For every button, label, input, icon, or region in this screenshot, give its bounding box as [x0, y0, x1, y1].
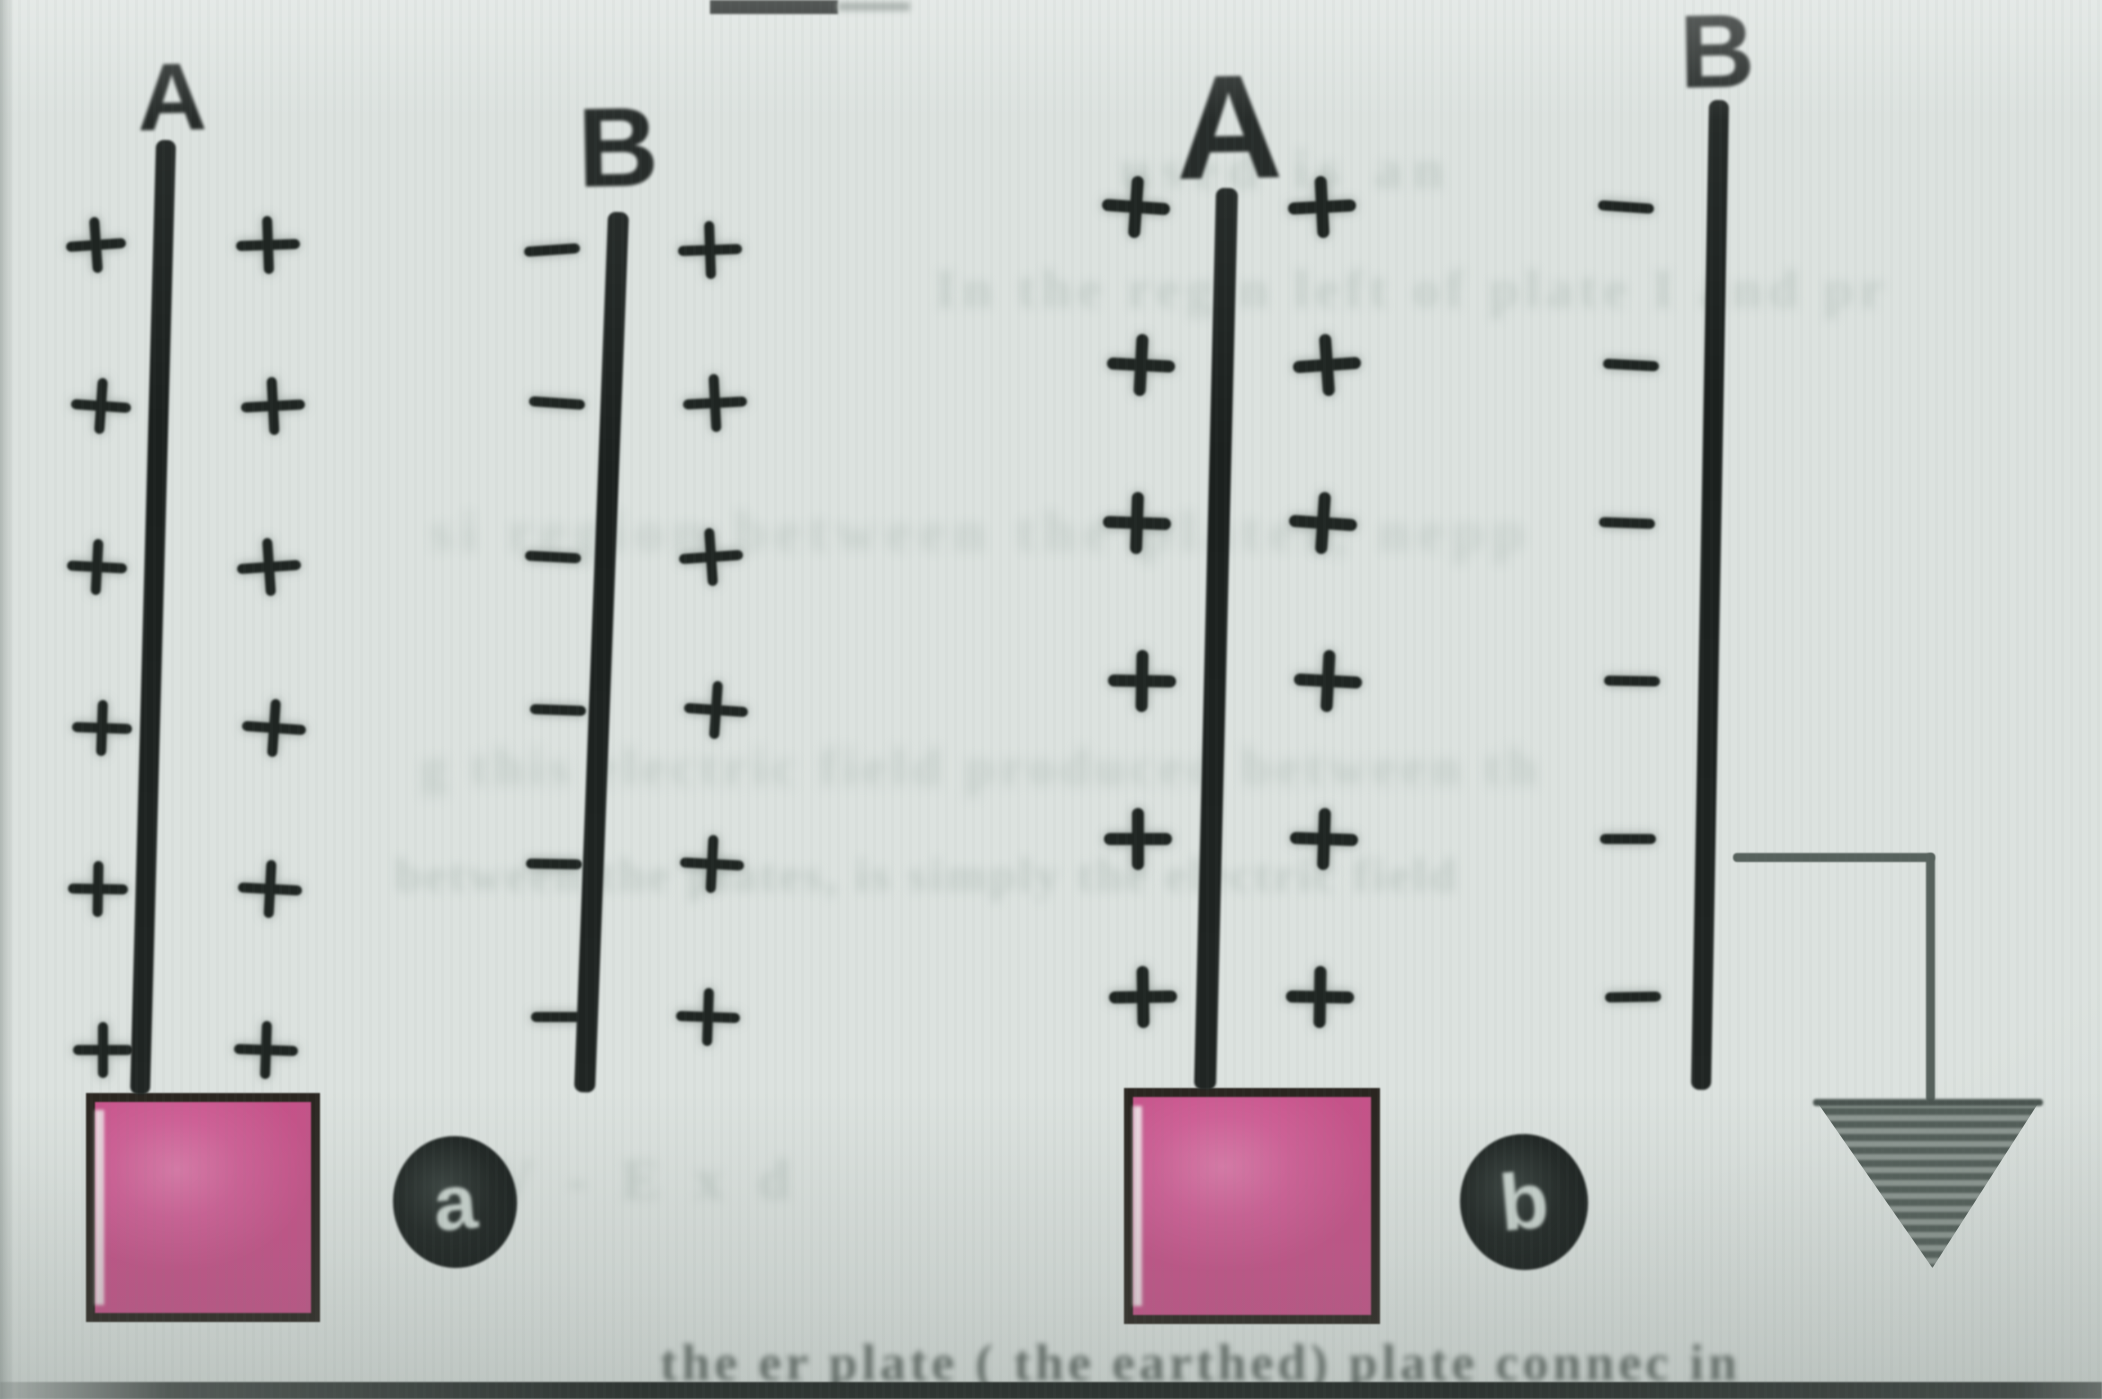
charge-bar-vertical — [1321, 649, 1336, 712]
plus-charge-icon — [65, 535, 128, 598]
plus-charge-icon — [67, 858, 128, 919]
plus-charge-icon — [240, 694, 308, 762]
book-scan-page: used is anIn the reg n left of plate I a… — [0, 0, 2102, 1399]
plus-charge-icon — [1285, 962, 1354, 1031]
charge-bar-vertical — [708, 373, 722, 432]
earth-wire-vertical — [1926, 853, 1935, 1102]
charge-bar-vertical — [1130, 492, 1144, 555]
plus-charge-icon — [73, 1020, 133, 1080]
charge-bar-vertical — [92, 861, 103, 916]
charge-bar-vertical — [90, 539, 103, 595]
subfigure-badge-label: a — [429, 1155, 480, 1249]
plate-label-b: B — [577, 91, 660, 204]
minus-charge-icon — [522, 220, 582, 280]
minus-charge-icon — [524, 528, 583, 587]
plus-charge-icon — [69, 374, 133, 438]
plus-charge-icon — [1286, 171, 1357, 242]
charge-bar-vertical — [704, 220, 717, 279]
charge-bar-vertical — [1319, 333, 1335, 396]
subfigure-badge-label: b — [1496, 1154, 1553, 1250]
bleedthrough-text: In the reg n left of plate I and pr — [935, 258, 1890, 320]
charge-bar-vertical — [94, 378, 108, 434]
ground-earth-icon — [1817, 1102, 2039, 1268]
bottom-cutoff-text-rule — [0, 1382, 2102, 1399]
charge-bar-horizontal — [526, 859, 582, 869]
charge-bar-horizontal — [524, 243, 581, 256]
plus-charge-icon — [1287, 487, 1360, 560]
charge-bar-vertical — [266, 376, 280, 435]
top-rule-smudge — [838, 2, 910, 11]
plus-charge-icon — [239, 372, 306, 439]
plus-charge-icon — [681, 369, 748, 436]
charge-bar-horizontal — [1599, 517, 1655, 528]
plus-charge-icon — [1102, 488, 1172, 558]
minus-charge-icon — [1598, 494, 1656, 552]
charge-bar-horizontal — [529, 396, 586, 409]
plate-a-line — [130, 140, 176, 1096]
ground-top-edge — [1813, 1099, 2043, 1106]
plus-charge-icon — [235, 212, 301, 278]
minus-charge-icon — [526, 836, 583, 893]
charge-bar-vertical — [89, 217, 103, 273]
subfigure-badge-b: b — [1454, 1129, 1593, 1276]
plate-a-line — [1194, 188, 1238, 1091]
charge-bar-vertical — [1315, 491, 1331, 554]
plus-charge-icon — [1105, 329, 1176, 400]
charge-bar-horizontal — [1604, 676, 1660, 686]
charge-bar-vertical — [1317, 808, 1331, 871]
bleedthrough-text: V - E x d — [492, 1146, 800, 1213]
charge-bar-vertical — [1128, 175, 1144, 238]
minus-charge-icon — [529, 681, 587, 739]
plus-charge-icon — [1107, 646, 1176, 715]
plus-charge-icon — [675, 984, 741, 1050]
charge-bar-vertical — [705, 834, 719, 893]
charge-bar-horizontal — [1603, 359, 1659, 371]
plus-charge-icon — [677, 523, 745, 591]
plus-charge-icon — [71, 697, 133, 759]
minus-charge-icon — [527, 373, 587, 433]
plus-charge-icon — [1291, 329, 1364, 402]
charge-bar-vertical — [1137, 966, 1150, 1029]
minus-charge-icon — [1605, 969, 1662, 1026]
insulating-stand-block — [1124, 1088, 1380, 1324]
charge-bar-vertical — [1132, 808, 1144, 871]
charge-bar-vertical — [96, 700, 108, 756]
charge-bar-horizontal — [525, 551, 581, 563]
plus-charge-icon — [233, 1017, 299, 1083]
plate-b-line — [1691, 100, 1729, 1090]
charge-bar-horizontal — [1598, 200, 1655, 213]
plate-label-a: A — [137, 49, 208, 146]
plus-charge-icon — [1292, 645, 1363, 716]
plus-charge-icon — [236, 855, 303, 922]
plus-charge-icon — [64, 213, 128, 277]
earth-wire-horizontal — [1733, 853, 1935, 862]
minus-charge-icon — [1600, 811, 1656, 867]
charge-bar-horizontal — [1605, 992, 1661, 1002]
insulating-stand-block — [86, 1093, 320, 1322]
plus-charge-icon — [677, 217, 743, 283]
plus-charge-icon — [1104, 805, 1172, 873]
charge-bar-vertical — [260, 1020, 273, 1079]
charge-bar-vertical — [98, 1022, 108, 1077]
plate-label-a: A — [1174, 53, 1283, 203]
charge-bar-vertical — [1314, 966, 1327, 1029]
minus-charge-icon — [1604, 653, 1661, 710]
charge-bar-horizontal — [530, 704, 586, 715]
charge-bar-vertical — [263, 859, 277, 918]
plus-charge-icon — [1289, 804, 1359, 874]
plate-b-line — [574, 212, 629, 1093]
plate-label-b: B — [1679, 0, 1756, 105]
plus-charge-icon — [1100, 171, 1173, 244]
charge-bar-vertical — [702, 987, 715, 1046]
plus-charge-icon — [1108, 962, 1177, 1031]
charge-bar-vertical — [1136, 650, 1149, 713]
top-partial-rule — [710, 0, 838, 14]
charge-bar-vertical — [262, 215, 275, 274]
charge-bar-vertical — [1134, 333, 1149, 396]
plus-charge-icon — [682, 676, 750, 744]
charge-bar-vertical — [1315, 175, 1330, 238]
minus-charge-icon — [1602, 336, 1661, 395]
plus-charge-icon — [235, 533, 303, 601]
minus-charge-icon — [1596, 177, 1656, 237]
charge-bar-horizontal — [1600, 834, 1656, 844]
plus-charge-icon — [678, 830, 745, 897]
